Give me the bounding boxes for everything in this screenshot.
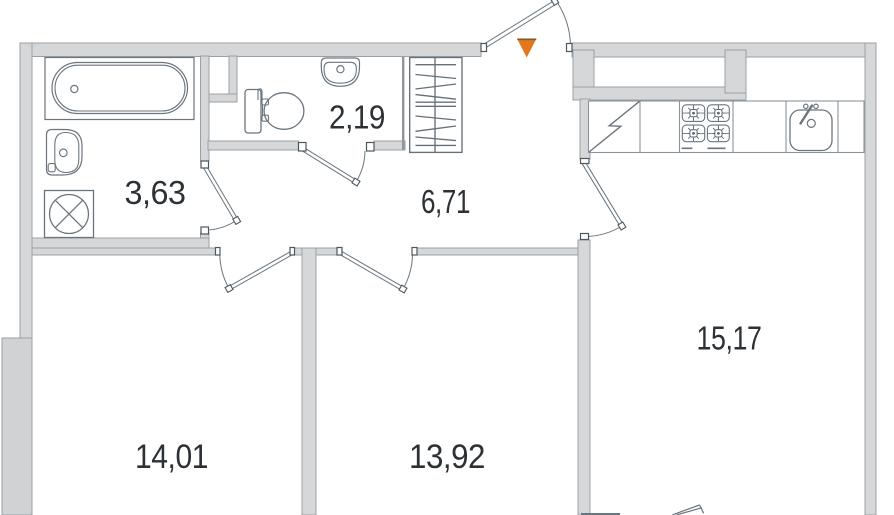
svg-text:14,01: 14,01 — [135, 438, 208, 476]
svg-text:3,63: 3,63 — [125, 174, 186, 211]
svg-text:13,92: 13,92 — [409, 438, 485, 476]
svg-text:15,17: 15,17 — [697, 320, 762, 357]
svg-text:6,71: 6,71 — [421, 183, 470, 220]
svg-text:2,19: 2,19 — [329, 99, 385, 136]
